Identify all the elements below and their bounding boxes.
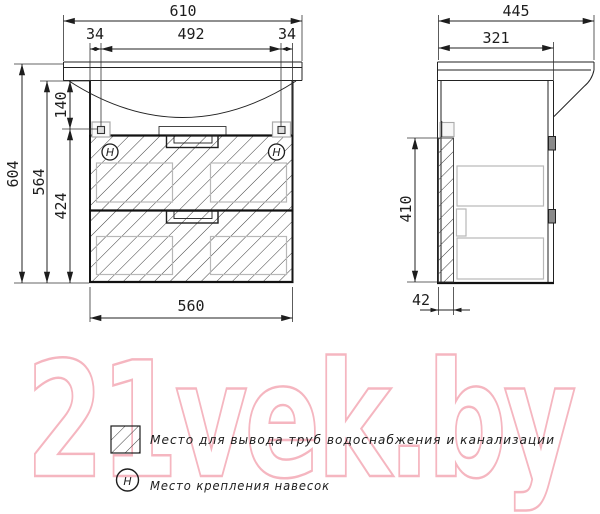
hanger-symbol-letter: H	[123, 475, 131, 488]
drawer-rail-outline	[457, 209, 467, 236]
svg-text:445: 445	[502, 2, 529, 20]
front-view: H H 610 34 492 34	[4, 2, 302, 322]
dim-center-span: 492	[177, 25, 204, 43]
svg-text:410: 410	[397, 195, 415, 222]
hanger-mark-letter: H	[106, 146, 114, 159]
legend: Место для вывода труб водоснабжения и ка…	[111, 426, 555, 493]
dim-back-height: 410	[397, 138, 438, 282]
dim-height-carcass: 564	[30, 168, 48, 195]
legend-item-hangers: H Место крепления навесок	[117, 469, 331, 493]
dim-hanger-drop: 140	[52, 91, 70, 118]
pipes-zone-hatch	[90, 136, 293, 283]
front-cabinet: H H	[89, 81, 294, 283]
svg-text:610: 610	[169, 2, 196, 20]
hanger-bracket-side	[440, 121, 454, 137]
dim-back-offset: 42	[412, 287, 470, 315]
hanger-bracket-right	[273, 122, 291, 137]
dim-offset-left: 34	[86, 25, 104, 43]
drawer-side-outline	[457, 238, 544, 279]
hatch-square-symbol	[111, 426, 140, 453]
front-clip	[549, 137, 556, 151]
svg-text:321: 321	[482, 29, 509, 47]
side-view: 445 321 410 42	[397, 2, 594, 315]
hanger-mark-left: H	[102, 144, 118, 160]
handle-top-recess	[159, 127, 226, 136]
side-cabinet	[437, 81, 556, 285]
hanger-mark-letter: H	[272, 146, 280, 159]
dim-lower-height: 424	[52, 192, 70, 219]
legend-hangers-label: Место крепления навесок	[150, 478, 330, 493]
front-countertop	[64, 62, 303, 118]
back-panel-pipes-hatch	[439, 138, 454, 282]
legend-item-pipes: Место для вывода труб водоснабжения и ка…	[111, 426, 555, 453]
vanity-technical-drawing: H H 610 34 492 34	[0, 0, 600, 499]
dim-depth-top: 445	[439, 2, 595, 60]
dim-depth-carcass: 321	[439, 29, 554, 80]
svg-text:560: 560	[177, 297, 204, 315]
side-countertop	[438, 62, 595, 117]
hanger-mark-right: H	[269, 144, 285, 160]
drawer-side-outline	[457, 166, 544, 206]
basin-side-profile	[554, 70, 594, 117]
legend-pipes-label: Место для вывода труб водоснабжения и ка…	[150, 432, 555, 447]
dim-offset-right: 34	[278, 25, 296, 43]
dim-heights: 604 564 140 424	[4, 64, 98, 283]
basin-bowl-curve	[69, 81, 296, 118]
svg-text:42: 42	[412, 291, 430, 309]
front-clip	[549, 210, 556, 224]
dim-width-bottom: 560	[90, 287, 293, 322]
dim-height-total: 604	[4, 160, 22, 187]
